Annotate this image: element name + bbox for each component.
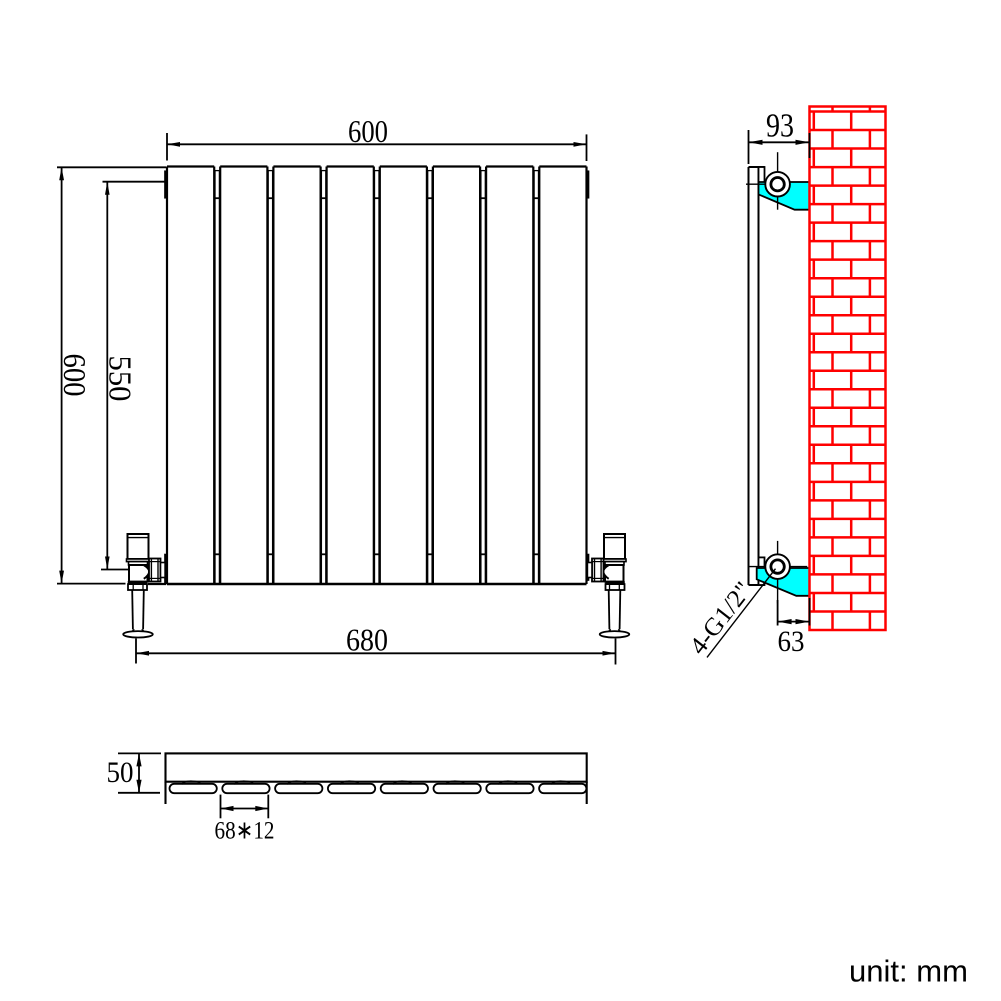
svg-text:63: 63 bbox=[778, 625, 805, 658]
svg-text:550: 550 bbox=[103, 356, 139, 402]
svg-text:93: 93 bbox=[766, 108, 794, 145]
svg-text:68∗12: 68∗12 bbox=[215, 816, 275, 845]
svg-text:unit: mm: unit: mm bbox=[849, 954, 968, 989]
svg-text:600: 600 bbox=[57, 354, 93, 397]
svg-text:680: 680 bbox=[346, 622, 388, 658]
svg-text:600: 600 bbox=[348, 113, 388, 149]
svg-text:50: 50 bbox=[107, 756, 134, 789]
